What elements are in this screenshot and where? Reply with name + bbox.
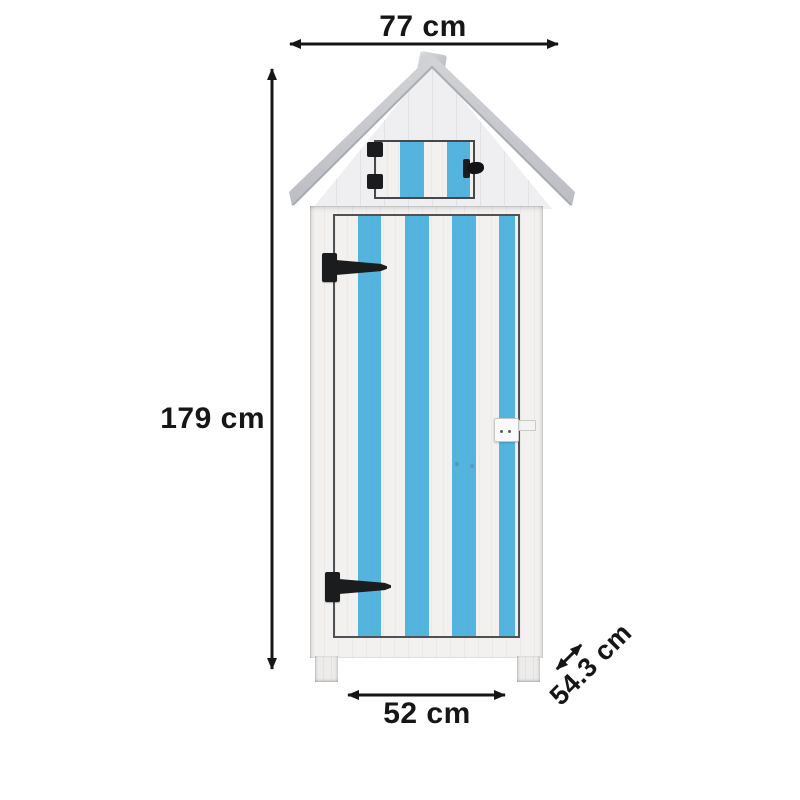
- width-dimension-label: 77 cm: [348, 12, 498, 42]
- height-dimension-label: 179 cm: [140, 404, 265, 434]
- latch-screw-icon: [508, 430, 511, 433]
- door-width-dimension-label: 52 cm: [352, 699, 502, 729]
- gable-hinge-bottom-icon: [367, 174, 383, 189]
- cabinet-leg-right: [517, 656, 540, 682]
- cabinet-leg-left: [315, 656, 338, 682]
- t-hinge-top-plate-icon: [322, 253, 337, 282]
- depth-dimension-label: 54.3 cm: [539, 613, 643, 717]
- latch-screw-icon: [500, 430, 503, 433]
- gable-door: [374, 140, 475, 199]
- product-dimension-diagram: 77 cm 179 cm 52 cm 54.3 cm: [0, 0, 800, 800]
- t-hinge-bottom-plate-icon: [325, 572, 340, 602]
- gable-hinge-top-icon: [367, 142, 383, 157]
- main-door: [333, 214, 520, 638]
- door-latch-icon: [494, 418, 519, 442]
